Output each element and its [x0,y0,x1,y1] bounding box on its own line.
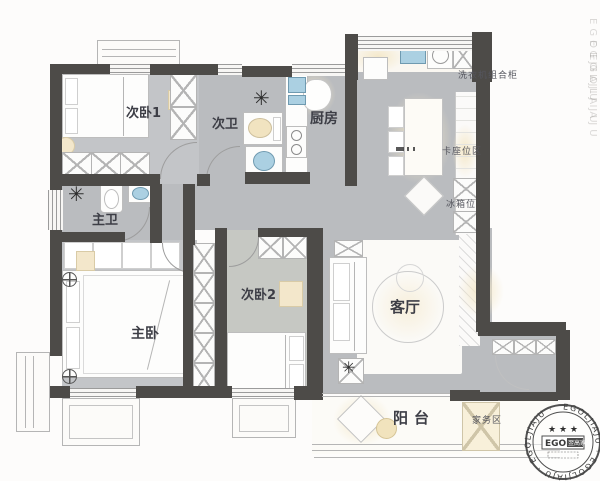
hall2-cabinet-c [536,339,556,355]
wall-top-a [50,64,110,74]
kitchen-stove [286,126,307,158]
hall-closet-cell [193,303,215,333]
wall-right-turn [478,322,566,336]
balcony-slider-track [322,393,450,394]
hall-closet-cell [193,243,215,273]
watermark-text-3: EGOLJIAJU [587,54,598,141]
bay-window-top [97,40,180,66]
bedroom2-bed [227,332,306,392]
wall-master-bottom-b [136,386,232,398]
wall-mid-b [197,174,210,186]
stamp-stars: ★ ★ ★ [548,425,578,435]
wall-kitchen-dining [345,42,357,186]
wall-top-b [150,64,218,75]
bedroom2-wardrobe-a [258,235,283,259]
bedroom1-wardrobe-a [170,74,197,107]
washer-cabinet-label: 洗衣机组合柜 [458,72,518,81]
bath2-toilet [243,112,283,145]
living-sofa [329,257,367,354]
hall2-cabinet-a [492,339,514,355]
bedroom2-desk [279,281,303,307]
living-label: 客厅 [390,300,420,315]
window-kitchen [292,64,345,76]
wall-balcony-stub [450,390,480,401]
master-label: 主卧 [131,327,159,341]
master-bed [62,270,190,378]
wall-top-c [242,66,292,77]
kitchen-label: 厨房 [310,112,338,126]
fridge-label: 冰箱位 [446,201,476,210]
window-bath2 [218,64,242,75]
master-wardrobe-c [122,242,151,269]
wall-closet-left [183,245,193,394]
booth-seat-label: 卡座位区 [442,148,482,157]
bath2-fan-icon: ✳ [253,88,270,108]
kitchen-sink-a [288,77,306,93]
wall-bedroom2-right [307,228,323,394]
living-side-table [334,240,363,257]
dining-mark [396,147,418,151]
master-ac-icon-bottom [62,369,77,384]
hall-closet-cell [193,273,215,303]
master-wardrobe-b [93,242,122,269]
bedroom2-label: 次卧2 [241,289,276,302]
wall-bedroom2-top [258,228,309,237]
dining-chair-3 [388,156,404,176]
booth-bench-lines [456,96,476,178]
wall-bath1-right [150,184,162,243]
wall-closet-right [215,228,227,394]
window-bedroom2-bottom [232,388,294,397]
wall-nook-right [183,184,195,245]
wall-right-lower [556,330,570,400]
bath2-label: 次卫 [212,118,238,131]
hall-closet-cell [193,333,215,363]
window-bath1 [48,190,63,230]
wall-right [476,60,490,332]
window-entry [358,36,472,51]
bath1-label: 主卫 [92,214,118,227]
entry-cabinet [363,57,388,80]
bath1-fan-icon: ✳ [68,184,85,204]
balcony-slider-track2 [322,396,450,397]
bay-window-bedroom2 [232,398,296,438]
bath1-sink [128,183,152,203]
stamp-brand-cn: 翌高家居 [568,439,592,447]
wall-bath1-bottom [62,232,125,242]
wall-mid-c [245,172,310,184]
housework-label: 家务区 [472,417,502,426]
dining-chair-1 [388,106,404,128]
bay-window-master-bottom [62,398,140,446]
master-ac-icon-top [62,272,77,287]
hall2-cabinet-b [514,339,536,355]
living-pendant-circle [396,264,424,292]
bay-window-master-left [16,352,50,432]
window-bedroom1 [110,64,150,74]
kitchen-sink-b [288,95,306,105]
balcony-label: 阳台 [393,411,435,426]
dining-table [404,98,443,176]
floor-plan: ✳ ✳ [0,0,600,481]
bedroom1-label: 次卧1 [126,107,161,120]
egol-stamp: EGOLJIAJU · EGOLJIAJU · EGOLJIAJU · ★ ★ … [520,400,600,481]
master-wardrobe-accent [76,251,95,271]
housework-cabinet [462,402,500,451]
living-fan-icon: ✳ [342,360,355,376]
wall-mid-a [50,174,160,186]
wall-master-bottom-a [50,386,70,398]
window-master-bottom [70,388,136,397]
bedroom1-wardrobe-b [170,107,197,140]
bedroom2-wardrobe-b [283,235,307,259]
wall-bedroom2-bottom [294,386,323,400]
